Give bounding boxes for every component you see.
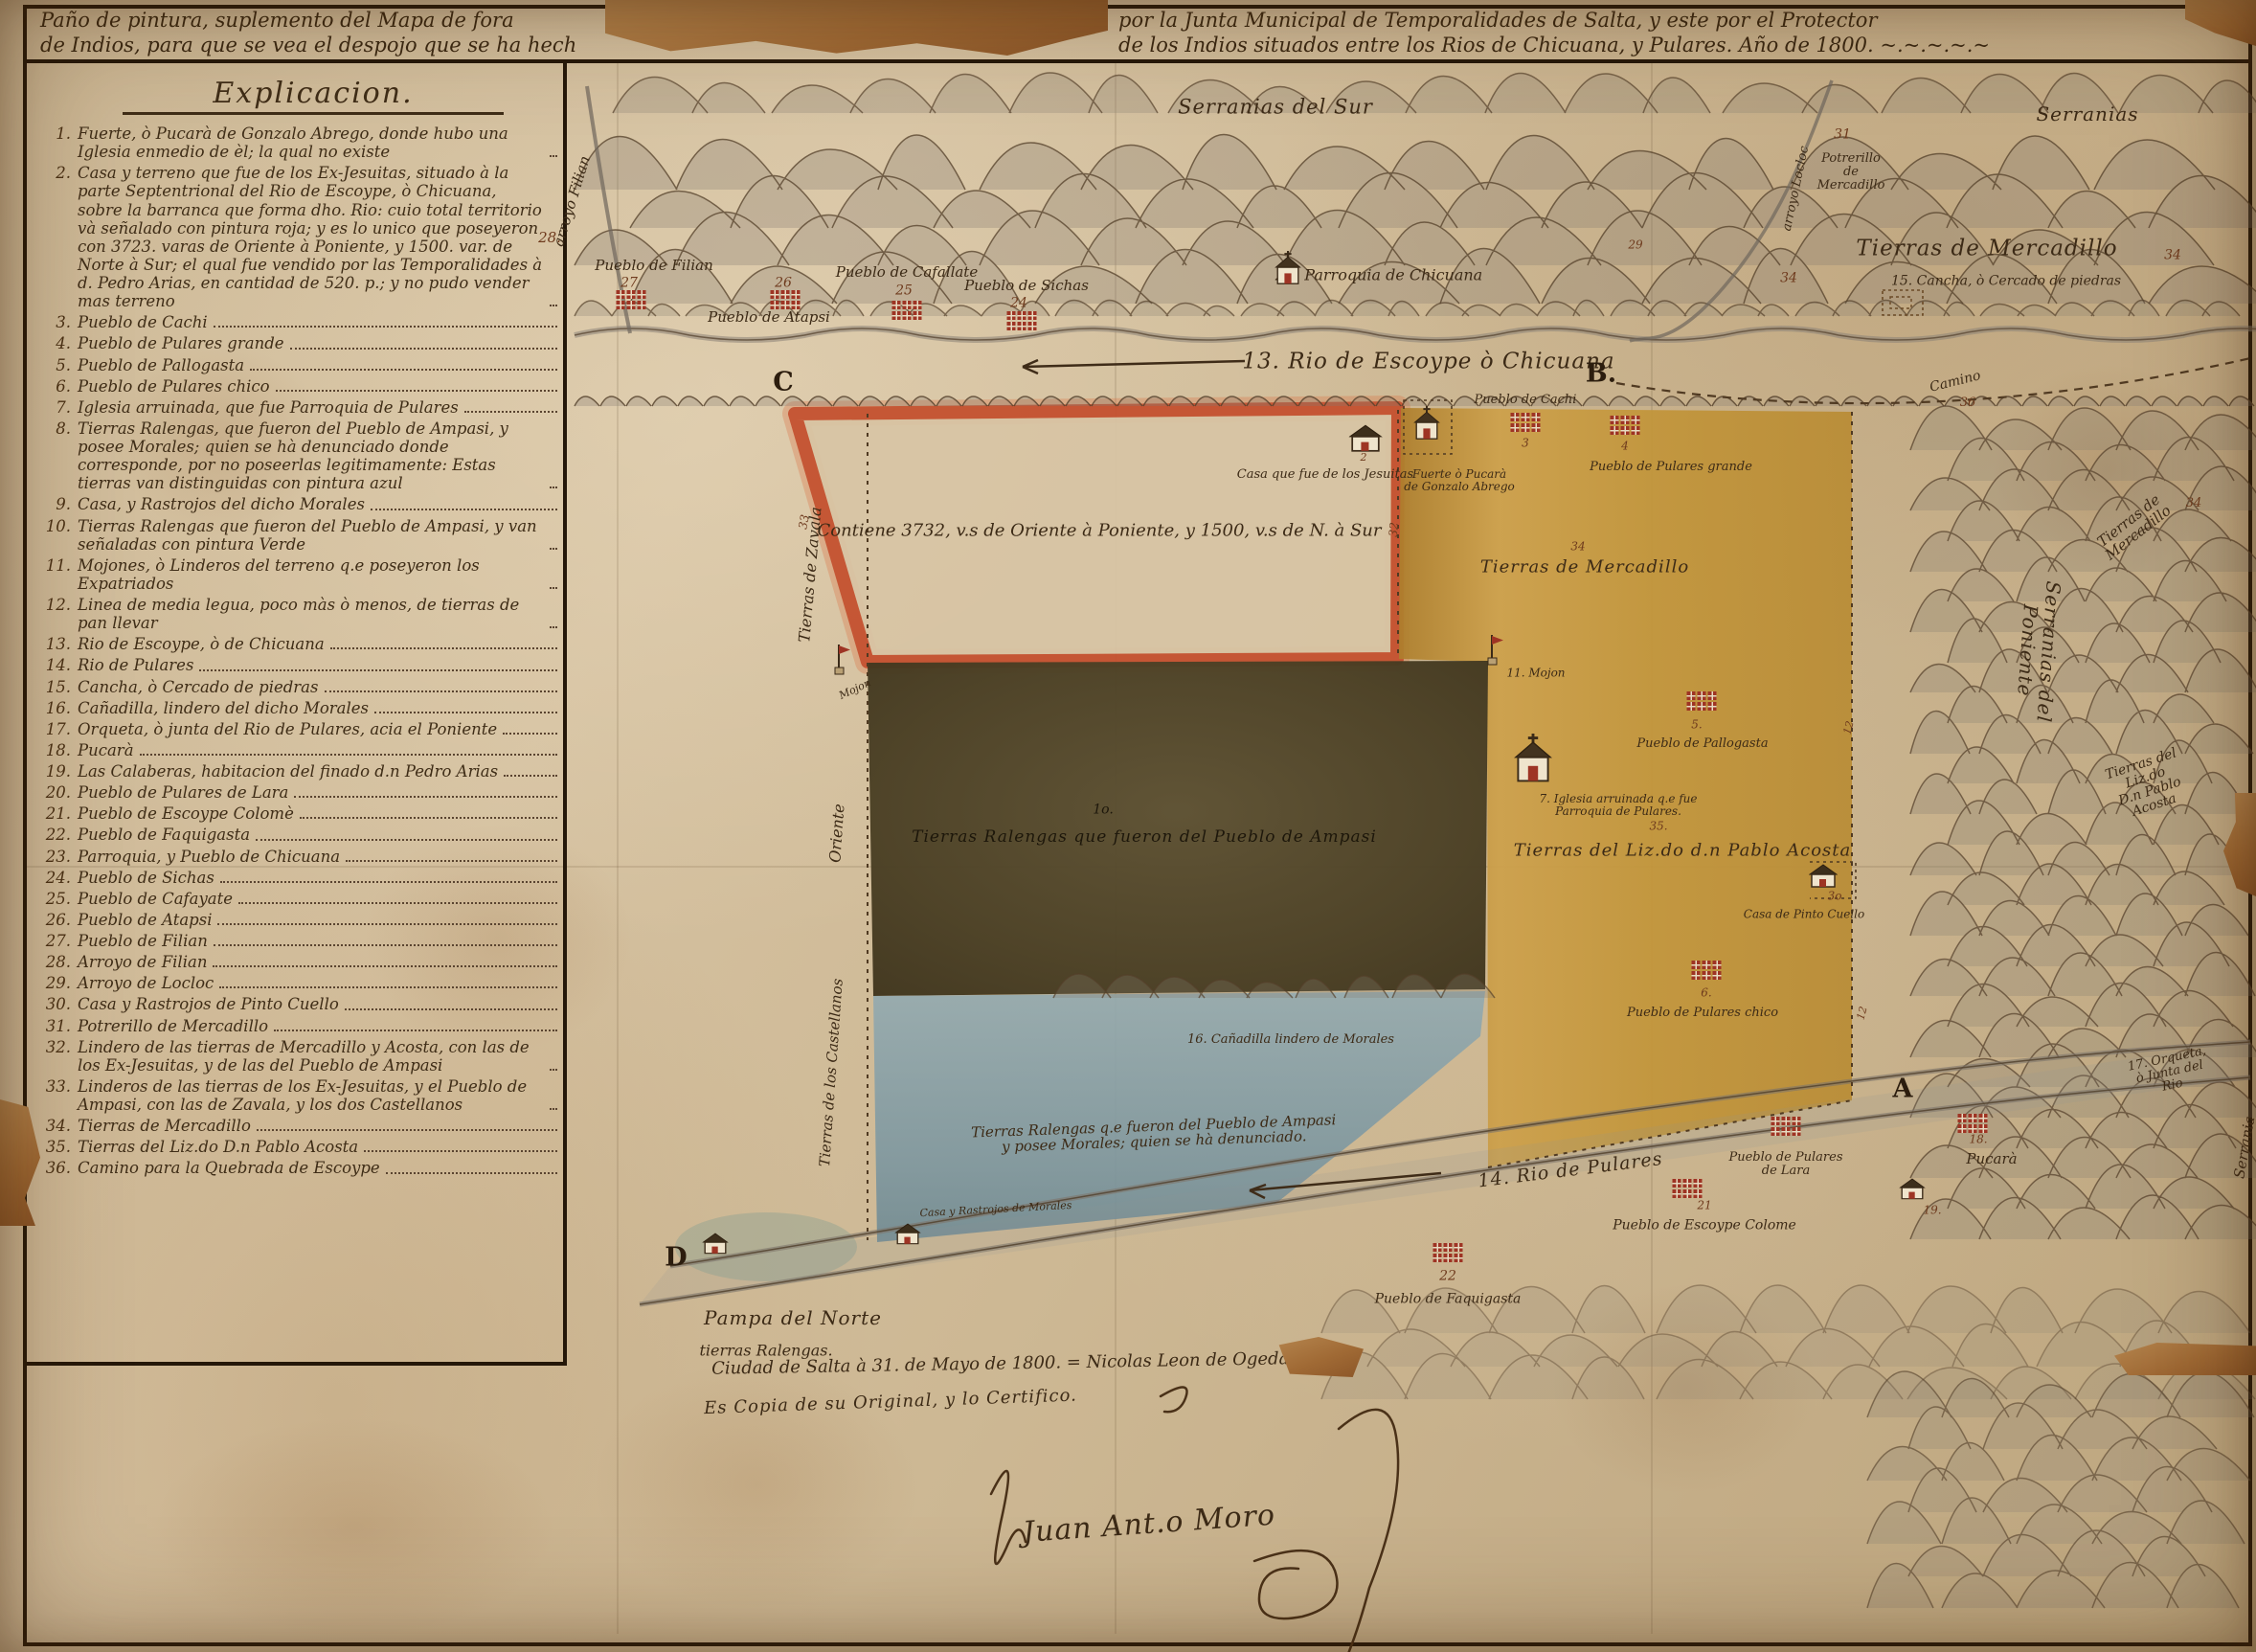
- map-sheet: Paño de pintura, suplemento del Mapa de …: [0, 0, 2256, 1652]
- map-art: [0, 0, 2256, 1652]
- torn-cardboard-patch: [605, 0, 1108, 56]
